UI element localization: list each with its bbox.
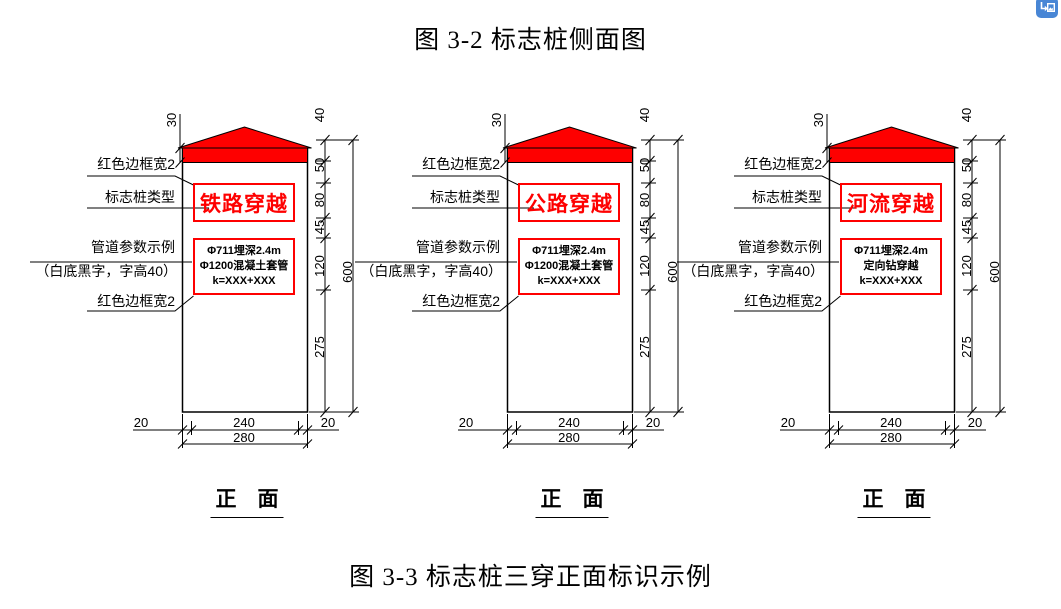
param-box: Φ711埋深2.4m 定向钻穿越 k=XXX+XXX [840, 238, 942, 295]
view-label-front: 正 面 [211, 483, 284, 518]
dim-40: 40 [959, 95, 973, 135]
dim-50: 50 [312, 145, 326, 185]
dim-40: 40 [637, 95, 651, 135]
dim-240: 240 [871, 415, 911, 429]
dim-cap-30: 30 [811, 100, 825, 140]
diagram-river-crossing: 红色边框宽2 标志桩类型 管道参数示例 （白底黑字，字高40） 红色边框宽2 河… [672, 90, 1012, 515]
param-line: Φ711埋深2.4m [207, 244, 281, 259]
param-line: Φ1200混凝土套管 [525, 259, 614, 274]
dim-280: 280 [224, 430, 264, 444]
param-line: Φ711埋深2.4m [854, 244, 928, 259]
dim-20-right: 20 [955, 415, 995, 429]
label-post-type: 标志桩类型 [430, 189, 500, 206]
dim-20-left: 20 [768, 415, 808, 429]
dim-240: 240 [224, 415, 264, 429]
type-text: 铁路穿越 [200, 188, 288, 218]
param-box: Φ711埋深2.4m Φ1200混凝土套管 k=XXX+XXX [518, 238, 620, 295]
dim-275: 275 [637, 327, 651, 367]
label-red-border-top: 红色边框宽2 [97, 156, 175, 173]
type-box: 公路穿越 [518, 183, 620, 222]
figure-title-bottom: 图 3-3 标志桩三穿正面标识示例 [0, 557, 1061, 593]
save-image-icon[interactable] [1036, 0, 1058, 18]
dim-240: 240 [549, 415, 589, 429]
dim-280: 280 [549, 430, 589, 444]
param-box: Φ711埋深2.4m Φ1200混凝土套管 k=XXX+XXX [193, 238, 295, 295]
dim-50: 50 [637, 145, 651, 185]
dim-45: 45 [959, 207, 973, 247]
dim-120: 120 [637, 246, 651, 286]
dim-20-right: 20 [633, 415, 673, 429]
label-param-note: （白底黑字，字高40） [360, 263, 502, 280]
diagram-highway-crossing: 红色边框宽2 标志桩类型 管道参数示例 （白底黑字，字高40） 红色边框宽2 公… [350, 90, 690, 515]
dim-cap-30: 30 [164, 100, 178, 140]
label-param-note: （白底黑字，字高40） [682, 263, 824, 280]
label-red-border-bottom: 红色边框宽2 [97, 293, 175, 310]
label-red-border-top: 红色边框宽2 [422, 156, 500, 173]
figure-title-top: 图 3-2 标志桩侧面图 [0, 20, 1061, 56]
dim-20-left: 20 [446, 415, 486, 429]
label-pipe-param: 管道参数示例 [416, 239, 500, 256]
dim-40: 40 [312, 95, 326, 135]
label-param-note: （白底黑字，字高40） [35, 263, 177, 280]
type-box: 铁路穿越 [193, 183, 295, 222]
arrow-into-image-glyph [1039, 2, 1055, 15]
dim-cap-30: 30 [489, 100, 503, 140]
label-pipe-param: 管道参数示例 [738, 239, 822, 256]
label-post-type: 标志桩类型 [752, 189, 822, 206]
dim-120: 120 [312, 246, 326, 286]
param-line: k=XXX+XXX [538, 274, 601, 289]
label-red-border-top: 红色边框宽2 [744, 156, 822, 173]
label-red-border-bottom: 红色边框宽2 [744, 293, 822, 310]
dim-20-right: 20 [308, 415, 348, 429]
dim-45: 45 [637, 207, 651, 247]
dim-275: 275 [312, 327, 326, 367]
dim-50: 50 [959, 145, 973, 185]
param-line: 定向钻穿越 [864, 259, 919, 274]
dim-45: 45 [312, 207, 326, 247]
param-line: Φ711埋深2.4m [532, 244, 606, 259]
label-post-type: 标志桩类型 [105, 189, 175, 206]
dim-280: 280 [871, 430, 911, 444]
type-text: 公路穿越 [525, 188, 613, 218]
view-label-front: 正 面 [858, 483, 931, 518]
label-pipe-param: 管道参数示例 [91, 239, 175, 256]
dim-120: 120 [959, 246, 973, 286]
diagram-railway-crossing: 红色边框宽2 标志桩类型 管道参数示例 （白底黑字，字高40） 红色边框宽2 铁… [25, 90, 365, 515]
view-label-front: 正 面 [536, 483, 609, 518]
param-line: Φ1200混凝土套管 [200, 259, 289, 274]
param-line: k=XXX+XXX [213, 274, 276, 289]
dim-275: 275 [959, 327, 973, 367]
dim-total-600: 600 [987, 252, 1001, 292]
dim-20-left: 20 [121, 415, 161, 429]
param-line: k=XXX+XXX [860, 274, 923, 289]
type-box: 河流穿越 [840, 183, 942, 222]
label-red-border-bottom: 红色边框宽2 [422, 293, 500, 310]
type-text: 河流穿越 [847, 188, 935, 218]
